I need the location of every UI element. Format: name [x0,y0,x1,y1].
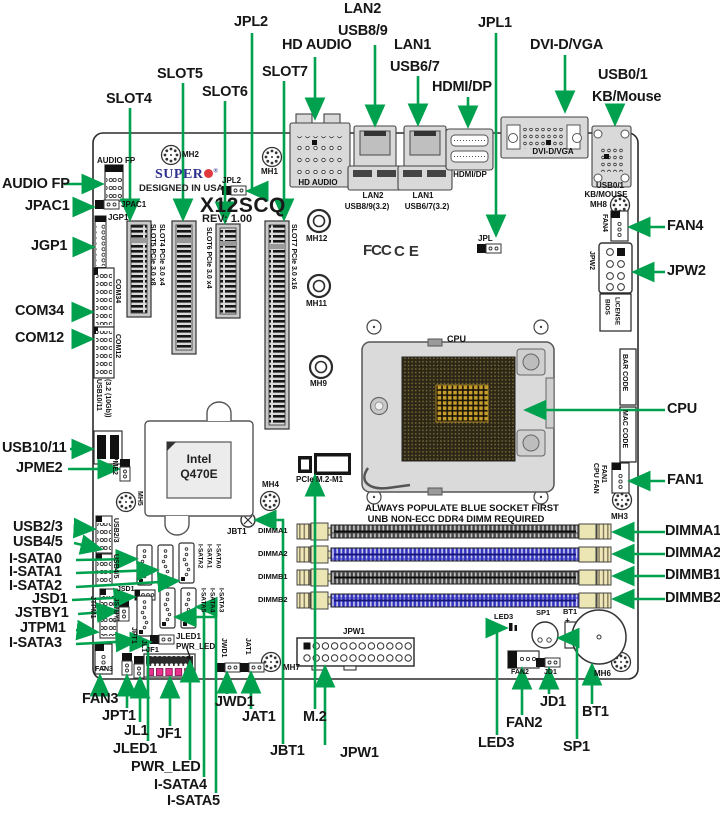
jwd1-jumper [216,663,240,672]
silkscreen-fan2: FAN2 [511,669,529,676]
hdmi-dp-port [446,129,493,170]
socket-screw-hole [534,320,548,334]
callout-jpl1: JPL1 [478,16,512,31]
motherboard-layout-diagram: LAN2 USB8/9 HD AUDIO LAN1 USB6/7 JPL1 DV… [0,0,720,814]
silkscreen-i-sata1: I-SATA1 [205,544,212,568]
silkscreen-m2: PCIe M.2-M1 [296,476,343,484]
silkscreen-kb-mouse: KB/MOUSE [584,191,627,199]
silkscreen-usb45: USB4/5 [112,554,119,579]
jpl1-jumper [477,244,501,253]
i-sata0-connector [137,545,152,585]
callout-cpu: CPU [667,402,697,417]
ce-mark: CE [394,244,423,259]
mh4-hole [261,492,280,511]
callout-fan2: FAN2 [506,716,542,731]
callout-slot6: SLOT6 [202,85,248,100]
silkscreen-mh1: MH1 [261,168,278,176]
i-sata4-connector [160,588,175,628]
fan1-header [612,463,629,493]
sticker-bar-code-text: BAR CODE [621,354,628,391]
silkscreen-mh8: MH8 [590,201,607,209]
silkscreen-com12: COM12 [114,334,121,358]
silkscreen-usb89: USB8/9(3.2) [345,203,389,211]
audio-fp-header [105,165,123,201]
silkscreen-usb67: USB6/7(3.2) [405,203,449,211]
mh9-hole [310,356,332,378]
silkscreen-mh4: MH4 [262,481,279,489]
jpme2-jumper [120,459,130,481]
callout-jf1: JF1 [157,727,181,742]
jd1-jumper [536,658,560,667]
silkscreen-jtpm1: JTPM1 [89,596,96,619]
sticker-license-text: LICENSE [613,297,620,325]
callout-hd-audio: HD AUDIO [282,38,352,53]
callout-jpw1: JPW1 [340,746,379,761]
fan4-header [611,211,628,241]
callout-kb-mouse: KB/Mouse [592,90,661,105]
silkscreen-i-sata0: I-SATA0 [214,544,221,568]
jpw2-power-connector [599,243,632,293]
silkscreen-pwr-led: PWR_LED [176,643,215,651]
board-revision: REV: 1.00 [202,214,252,225]
com34-header [94,268,114,327]
dimm-slot-b1 [297,569,611,586]
callout-jl1: JL1 [124,724,148,739]
callout-jwd1: JWD1 [215,695,255,710]
silkscreen-slot6: SLOT6 PCIe 3.0 x4 [205,227,212,288]
silkscreen-slot4: SLOT4 PCIe 3.0 x4 [158,224,165,285]
dimm-slot-a1 [297,523,611,540]
callout-led3: LED3 [478,736,514,751]
mh2-hole [162,146,181,165]
pcie-slot7 [265,221,289,429]
sticker-mac-code-text: MAC CODE [621,410,628,448]
sticker-bios-text: BIOS [603,299,610,315]
supermicro-logo: SUPER® [155,168,218,182]
silkscreen-jd1: JD1 [544,669,557,676]
silkscreen-mh5: MH5 [136,491,143,506]
callout-dimmb1: DIMMB1 [665,568,720,583]
logo-text: SUPER [155,167,203,182]
silkscreen-sp1: SP1 [536,609,550,617]
callout-slot7: SLOT7 [262,65,308,80]
dimm-note-line1: ALWAYS POPULATE BLUE SOCKET FIRST [365,504,559,514]
silkscreen-com34: COM34 [114,279,121,303]
callout-jd1: JD1 [540,695,566,710]
silkscreen-mh6: MH6 [594,670,611,678]
callout-jat1: JAT1 [242,710,276,725]
callout-m2: M.2 [303,710,327,725]
callout-lan2: LAN2 [344,2,381,17]
silkscreen-usb23: USB2/3 [112,518,119,543]
callout-jpl2: JPL2 [234,15,268,30]
callout-jpme2: JPME2 [16,461,63,476]
jpac1-jumper [95,200,119,209]
silkscreen-mh3: MH3 [611,513,628,521]
silkscreen-usb1011: USB10/11 [95,379,102,411]
pcie-slot5 [172,221,196,354]
designed-in-usa-text: DESIGNED IN USA [139,184,223,194]
callout-usb23: USB2/3 [13,520,63,535]
com12-header [94,327,114,378]
jstby1-jumper [119,599,129,621]
socket-screw-hole [367,320,381,334]
sp1-speaker [532,622,558,648]
silkscreen-jwd1: JWD1 [220,638,227,657]
callout-jpw2: JPW2 [667,264,706,279]
callout-fan3: FAN3 [82,692,118,707]
silkscreen-mh11: MH11 [306,300,327,308]
silkscreen-audio-fp: AUDIO FP [97,157,135,165]
silkscreen-jpme2: JPME2 [111,452,118,475]
silkscreen-led3: LED3 [494,613,513,621]
callout-pwr-led: PWR_LED [131,760,201,775]
mh11-hole [308,275,330,297]
callout-sp1: SP1 [563,740,590,755]
silkscreen-slot5: SLOT5 PCIe 3.0 x8 [149,224,156,285]
callout-i-sata5: I-SATA5 [167,794,220,809]
callout-dvi-vga: DVI-D/VGA [530,38,603,53]
mh12-hole [308,210,330,232]
silkscreen-lan2: LAN2 [363,192,384,200]
silkscreen-jled1: JLED1 [176,633,201,641]
cpu-socket [362,339,554,495]
silkscreen-i-sata2: I-SATA2 [196,544,203,568]
silkscreen-lan1: LAN1 [413,192,434,200]
silkscreen-mh12: MH12 [306,235,327,243]
silkscreen-hd-audio: HD AUDIO [298,179,337,187]
lan1-usb67-port [398,126,452,190]
silkscreen-jat1: JAT1 [244,638,251,655]
callout-dimma2: DIMMA2 [665,546,720,561]
callout-fan1: FAN1 [667,473,703,488]
silkscreen-dvi-vga: DVI-D/VGA [532,148,573,156]
silkscreen-fan1: FAN1 [600,465,607,483]
callout-i-sata4: I-SATA4 [154,778,207,793]
silkscreen-slot7: SLOT7 PCIe 3.0 x16 [290,224,297,289]
silkscreen-jpt1: JPT1 [130,627,137,644]
jgp1-header [95,216,106,273]
silkscreen-hdmi-dp: HDMI/DP [453,171,487,179]
silkscreen-jpac1: JPAC1 [121,201,146,209]
silkscreen-jsd1: JSD1 [117,586,135,593]
callout-usb01: USB0/1 [598,68,648,83]
callout-jbt1: JBT1 [270,744,305,759]
dimm-slot-a2 [297,546,611,563]
silkscreen-jpw1: JPW1 [343,628,365,636]
hd-audio-port [290,114,350,187]
callout-jgp1: JGP1 [31,239,67,254]
pch-chip-model: Q470E [180,468,217,480]
callout-dimmb2: DIMMB2 [665,591,720,606]
silkscreen-i-sata5: I-SATA5 [199,588,206,612]
silkscreen-usb1011-speed: (3.2 (10Gb)) [104,379,111,418]
battery-plus-sign: + [565,617,570,625]
callout-hdmi-dp: HDMI/DP [432,80,492,95]
pch-chip-brand: Intel [187,453,212,465]
callout-fan4: FAN4 [667,219,703,234]
mh5-hole [117,493,136,512]
callout-jstby1: JSTBY1 [15,606,69,621]
silkscreen-mh2: MH2 [182,151,199,159]
silkscreen-cpu-fan: CPU FAN [592,463,599,494]
callout-jpac1: JPAC1 [25,199,70,214]
dimm-note-line2: UNB NON-ECC DDR4 DIMM REQUIRED [368,515,545,525]
callout-com12: COM12 [15,331,64,346]
silkscreen-fan3: FAN3 [95,666,113,673]
mh1-hole [263,148,282,167]
jled1-jumper [150,635,174,644]
silkscreen-mh9: MH9 [310,380,327,388]
callout-usb1011: USB10/11 [2,441,67,456]
callout-slot5: SLOT5 [157,67,203,82]
callout-i-sata3: I-SATA3 [9,636,62,651]
silkscreen-fan4: FAN4 [601,214,608,232]
silkscreen-mh7: MH7 [283,664,300,672]
silkscreen-bt1: BT1 [563,608,577,616]
silkscreen-i-sata3: I-SATA3 [217,588,224,612]
silkscreen-jpl: JPL [478,235,493,243]
silkscreen-dimmb1: DIMMB1 [258,573,288,581]
silkscreen-dimmb2: DIMMB2 [258,596,288,604]
fan2-header [508,651,539,668]
silkscreen-i-sata4: I-SATA4 [208,588,215,612]
silkscreen-cpu: CPU [447,335,466,344]
callout-com34: COM34 [15,304,64,319]
silkscreen-jpl2: JPL2 [222,177,241,185]
silkscreen-jbt1: JBT1 [227,528,247,536]
callout-jpt1: JPT1 [102,709,136,724]
jl1-jumper [134,656,144,678]
pcie-slot4 [127,221,151,317]
callout-jled1: JLED1 [113,742,157,757]
pcie-slot6 [216,224,240,318]
silkscreen-usb01: USB0/1 [596,182,624,190]
i-sata5-connector [181,588,196,628]
silkscreen-jgp1: JGP1 [108,214,128,222]
m2-connector [298,453,351,475]
silkscreen-jf1: JF1 [146,646,159,654]
i-sata1-connector [158,545,173,585]
usb01-kb-mouse-port [592,126,631,187]
jat1-jumper [240,663,264,672]
callout-slot4: SLOT4 [106,92,152,107]
callout-jtpm1: JTPM1 [20,621,66,636]
fcc-mark: FCC [363,243,391,258]
silkscreen-jpw2: JPW2 [588,251,595,270]
silkscreen-jstby1: JSTBY1 [112,598,119,623]
lan2-usb89-port [348,126,402,190]
callout-usb67: USB6/7 [390,60,440,75]
callout-lan1: LAN1 [394,38,431,53]
logo-reg: ® [213,168,218,174]
i-sata3-connector [137,596,152,636]
callout-usb45: USB4/5 [13,535,63,550]
silkscreen-dimma2: DIMMA2 [258,550,288,558]
callout-audio-fp: AUDIO FP [2,177,70,192]
jpt1-jumper [122,653,132,675]
silkscreen-dimma1: DIMMA1 [258,527,288,535]
callout-bt1: BT1 [582,705,609,720]
callout-dimma1: DIMMA1 [665,524,720,539]
i-sata2-connector [179,543,194,583]
